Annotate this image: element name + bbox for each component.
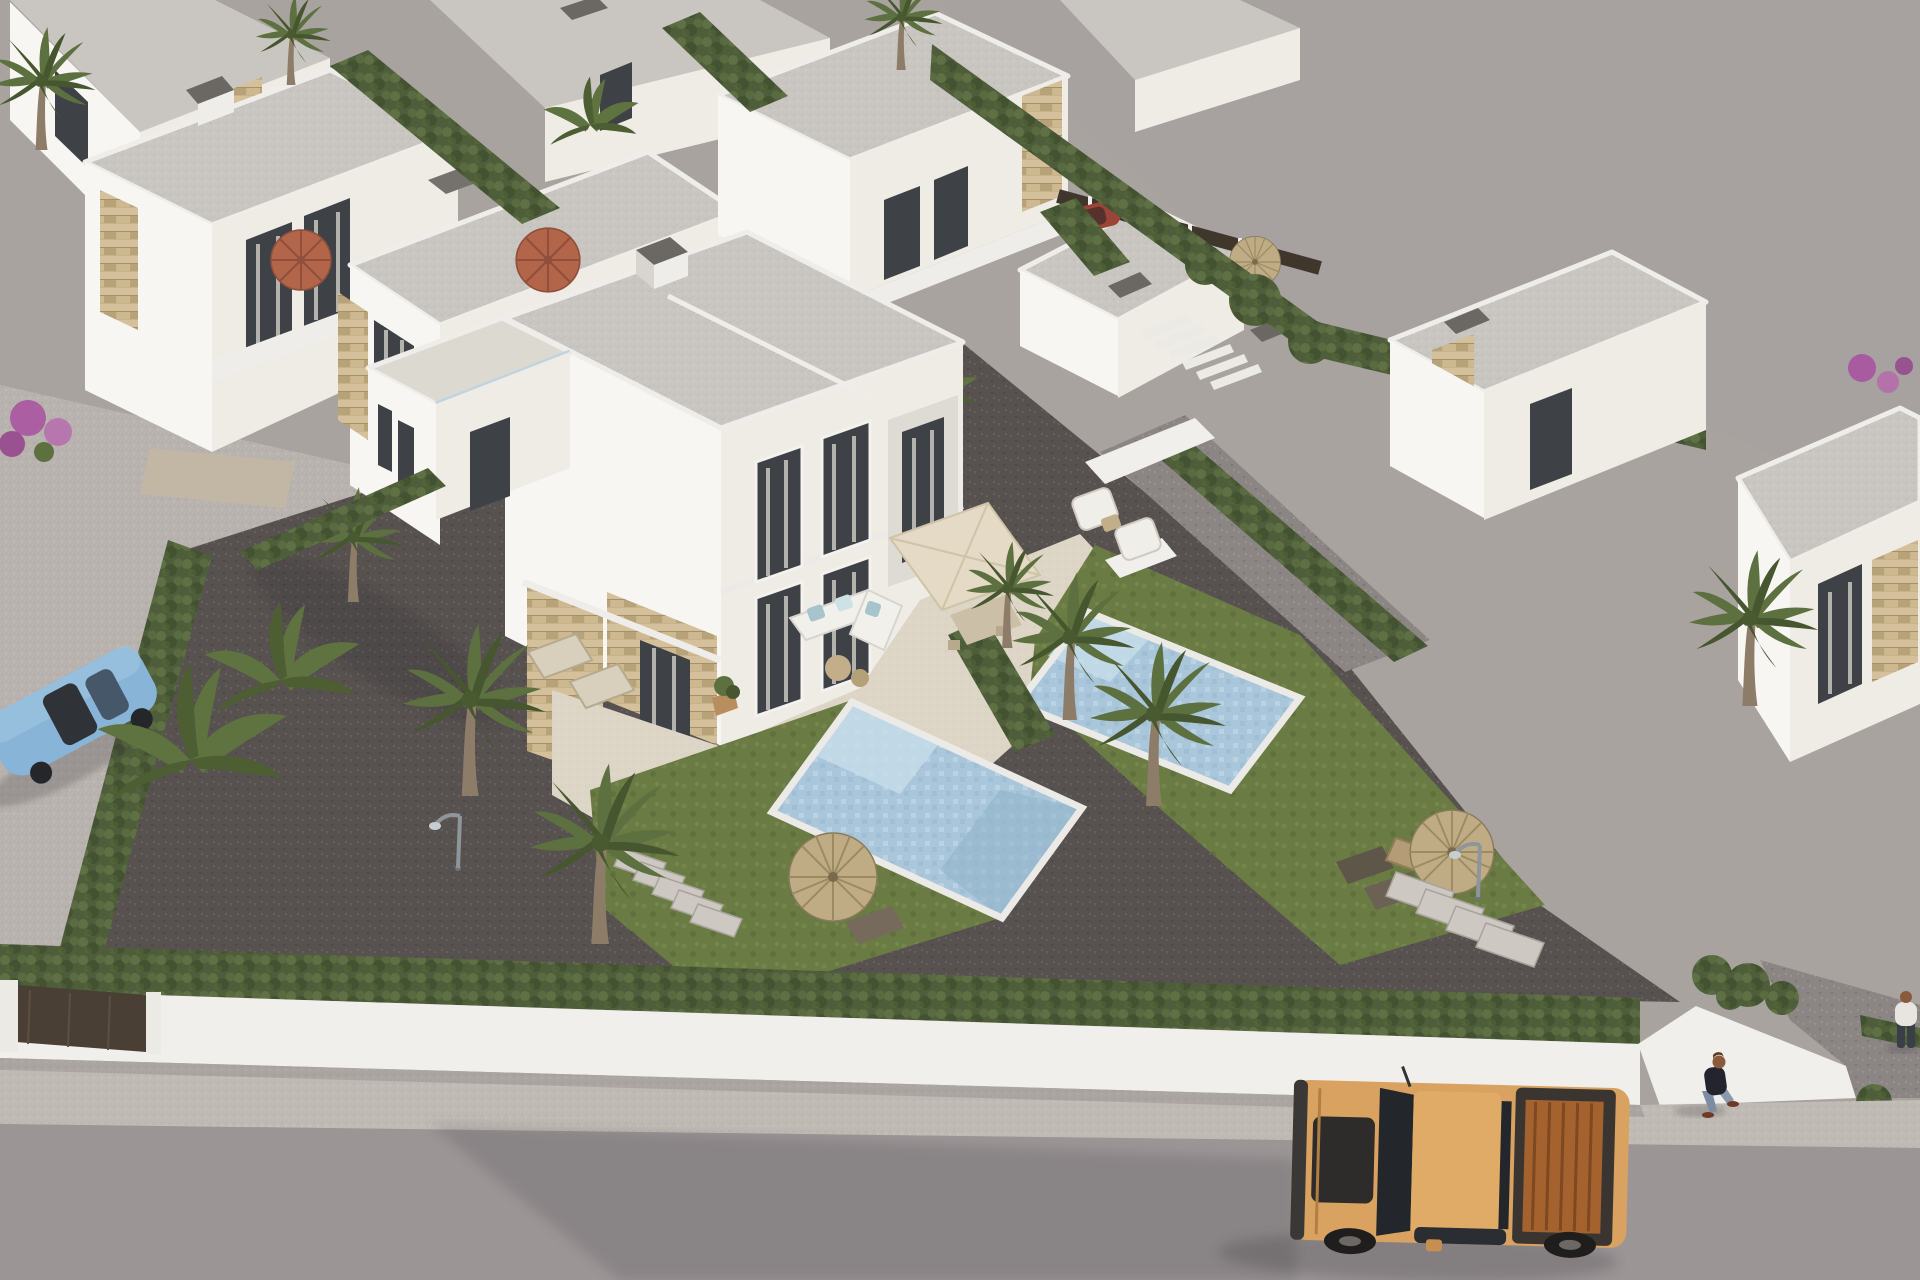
render-viewport: Empty grey building plot behind the boun…	[0, 0, 1920, 1280]
terracotta-parasol	[516, 228, 580, 292]
aerial-render: Empty grey building plot behind the boun…	[0, 0, 1920, 1280]
terracotta-parasol	[271, 230, 331, 290]
